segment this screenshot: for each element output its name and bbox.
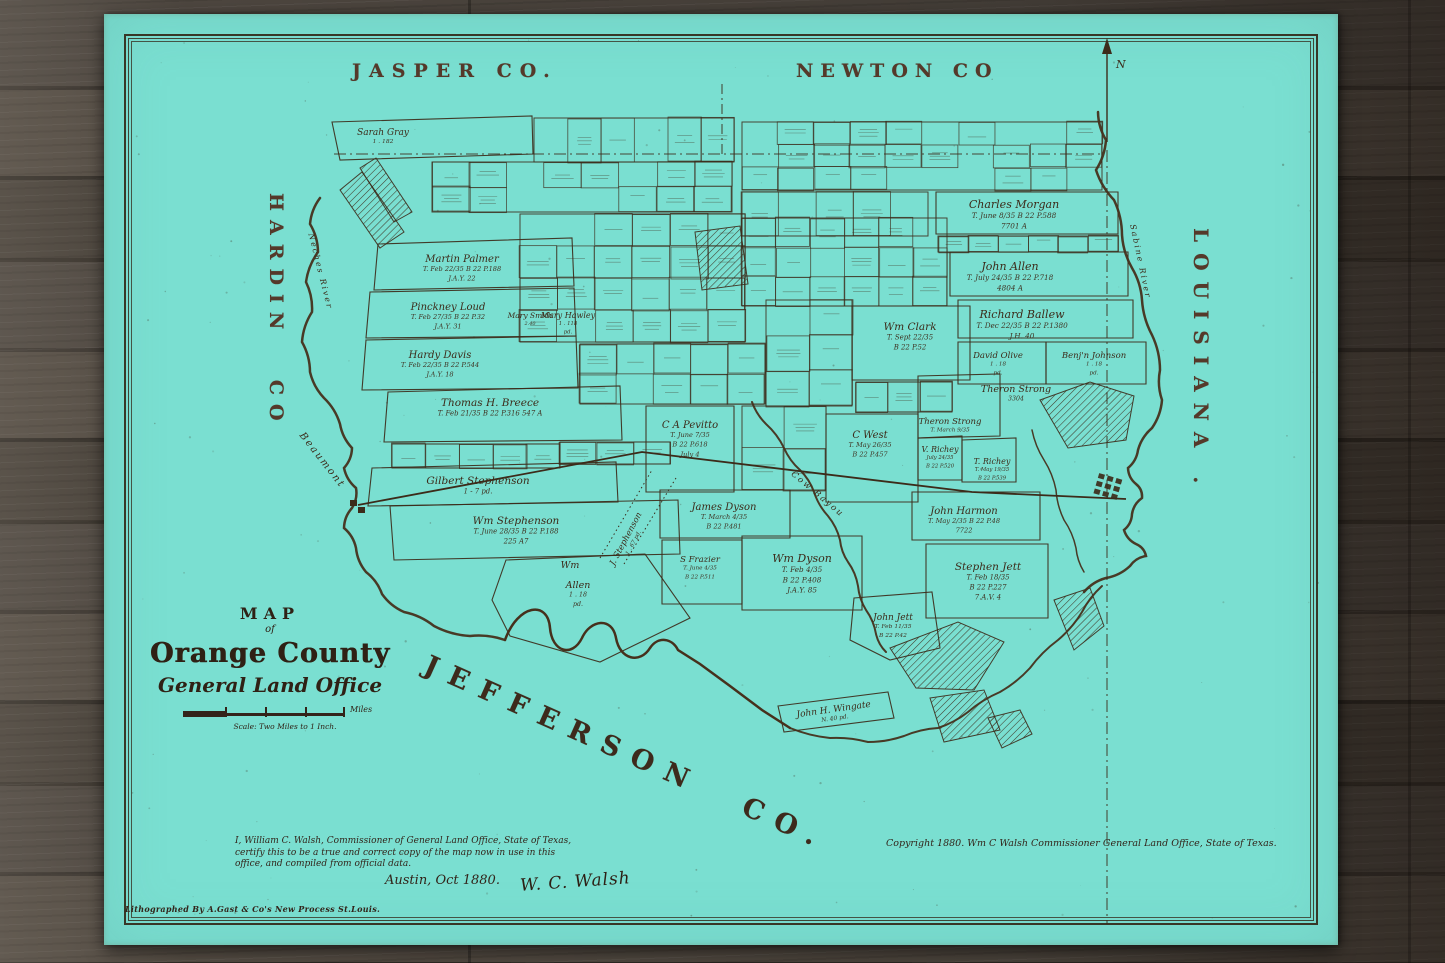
- neighbor-county-label-newton: NEWTON CO: [796, 60, 999, 82]
- map-title-of: of: [145, 624, 395, 635]
- map-title: Orange County: [145, 638, 395, 669]
- map-photo-scene: NSarah Gray1 . 182Martin PalmerT. Feb 22…: [0, 0, 1445, 963]
- neighbor-county-label-hardin: HARDIN CO: [265, 193, 287, 430]
- scale-bar-tick: [265, 707, 267, 717]
- lithographer-line: Lithographed By A.Gast & Co's New Proces…: [125, 904, 380, 914]
- map-title-block: MAP of Orange County General Land Office…: [145, 604, 395, 731]
- scale-bar: Miles: [183, 705, 373, 721]
- scale-caption: Scale: Two Miles to 1 Inch.: [175, 722, 395, 731]
- neighbor-state-label-louisiana: LOUISIANA .: [1189, 228, 1213, 494]
- map-title-kicker: MAP: [145, 604, 395, 623]
- scale-bar-tick: [225, 707, 227, 717]
- copyright-line: Copyright 1880. Wm C Walsh Commissioner …: [886, 838, 1278, 849]
- map-subtitle: General Land Office: [145, 673, 395, 697]
- scale-bar-tick: [305, 707, 307, 717]
- certification-line: I, William C. Walsh, Commissioner of Gen…: [235, 836, 625, 848]
- scale-bar-tick: [343, 707, 345, 717]
- certification-line: office, and compiled from official data.: [235, 859, 625, 871]
- neighbor-county-label-jasper: JASPER CO.: [352, 60, 558, 82]
- certification-line: certify this to be a true and correct co…: [235, 848, 625, 860]
- scale-units-label: Miles: [350, 705, 372, 714]
- scale-bar-solid-segment: [183, 711, 225, 717]
